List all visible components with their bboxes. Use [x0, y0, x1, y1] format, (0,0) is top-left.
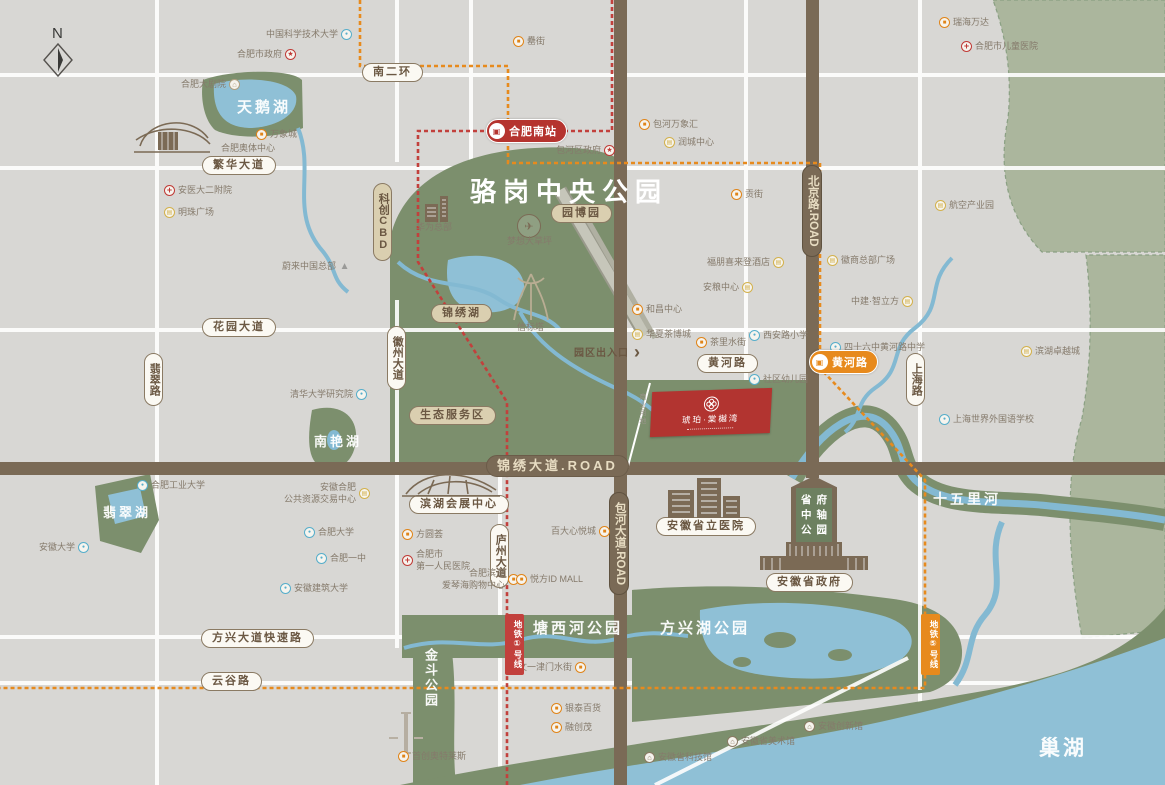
poi-school: ●安徽建筑大学	[280, 583, 348, 595]
poi-mall: ■万象城	[256, 129, 297, 141]
poi-hosp: +安医大二附院	[164, 185, 232, 197]
poi-museum: ⌂安徽创新馆	[804, 721, 863, 733]
train-icon: ▣	[812, 354, 828, 370]
poi-mall: ■瑞海万达	[939, 17, 989, 29]
poi-label: 万象城	[270, 129, 297, 141]
poi-school: ●清华大学研究院	[290, 389, 367, 401]
poi-label: 包河万象汇	[653, 119, 698, 131]
scale-bar	[404, 712, 408, 754]
mall-icon: ■	[696, 337, 707, 348]
area-label: 南艳湖	[314, 431, 362, 450]
poi-gov: ★合肥市政府	[237, 49, 296, 61]
poi-nio: ▲蔚来中国总部	[282, 261, 350, 273]
school-icon: ●	[356, 389, 367, 400]
area-label: 方兴湖公园	[660, 617, 750, 638]
poi-biz: ▤润城中心	[664, 137, 714, 149]
school-icon: ●	[280, 583, 291, 594]
poi-label: 百大心悦城	[551, 526, 596, 538]
station-label: 合肥南站	[509, 123, 557, 139]
poi-label: 合肥滨湖 爱琴海购物中心	[442, 568, 505, 591]
compass-n: N	[52, 25, 63, 42]
poi-school: ●合肥一中	[316, 553, 366, 565]
poi-label: 安徽建筑大学	[294, 583, 348, 595]
road-label: 云谷路	[201, 672, 262, 691]
hosp-icon: +	[164, 185, 175, 196]
poi-label: 安徽合肥 公共资源交易中心	[284, 482, 356, 505]
poi-label: 合肥工业大学	[151, 480, 205, 492]
hosp-icon: +	[961, 41, 972, 52]
school-icon: ●	[749, 330, 760, 341]
biz-icon: ▤	[664, 137, 675, 148]
compass: N	[36, 24, 80, 85]
convention-center-illustration	[398, 468, 504, 500]
poi-mall: ■方圆荟	[402, 529, 443, 541]
poi-biz: ▤滨湖卓越城	[1021, 346, 1080, 358]
poi-plain: 信标塔	[517, 322, 544, 334]
poi-biz: ▤安粮中心	[703, 282, 753, 294]
poi-label: 华夏茶博城	[646, 329, 691, 341]
project-emblem-icon	[703, 396, 720, 413]
poi-mall: ■悦方ID MALL	[516, 574, 583, 586]
poi-mall: ■罍街	[513, 36, 545, 48]
park-entrance-label: 园区出入口 ›	[574, 344, 641, 359]
mall-icon: ■	[256, 129, 267, 140]
mall-icon: ■	[639, 119, 650, 130]
biz-icon: ▤	[773, 257, 784, 268]
museum-icon: ⌂	[727, 736, 738, 747]
poi-label: 文一津门水街	[518, 662, 572, 674]
poi-label: 安徽省科技馆	[658, 752, 712, 764]
poi-biz: ▤福朋喜来登酒店	[707, 257, 784, 269]
school-icon: ●	[304, 527, 315, 538]
poi-label: 贡街	[745, 189, 763, 201]
poi-label: 信标塔	[517, 322, 544, 334]
poi-label: 安徽省美术馆	[741, 736, 795, 748]
poi-label: 社区幼儿园	[763, 374, 808, 386]
mall-icon: ■	[731, 189, 742, 200]
poi-label: 合肥一中	[330, 553, 366, 565]
axis-park-banner: 省府中轴公园	[791, 476, 837, 546]
road-label: 南二环	[362, 63, 423, 82]
poi-biz: ▤航空产业园	[935, 200, 994, 212]
mall-icon: ■	[551, 722, 562, 733]
poi-label: 合肥大剧院	[181, 79, 226, 91]
metro-station-badge: ▣合肥南站	[486, 119, 567, 143]
poi-school: ●社区幼儿园	[749, 374, 808, 386]
road-label: 方兴大道快速路	[201, 629, 314, 648]
plot-label: 商业用地	[637, 393, 647, 425]
project-marker: 琥珀·棠樾湾	[650, 388, 772, 437]
poi-school: ●中国科学技术大学	[266, 29, 352, 41]
hosp-icon: +	[402, 555, 413, 566]
poi-mall: ■文一津门水街	[518, 662, 586, 674]
school-icon: ●	[316, 553, 327, 564]
olympic-stadium-illustration	[128, 110, 216, 156]
poi-school: ●上海世界外国语学校	[939, 414, 1034, 426]
poi-school: ●西安路小学	[749, 330, 808, 342]
poi-label: 航空产业园	[949, 200, 994, 212]
biz-icon: ▤	[935, 200, 946, 211]
provincial-hospital-illustration	[664, 474, 744, 520]
poi-label: 和昌中心	[646, 304, 682, 316]
beacon-tower-illustration	[508, 270, 554, 324]
park-entrance-text: 园区出入口	[574, 344, 629, 359]
poi-plain: 梦想大草坪	[507, 236, 552, 248]
poi-label: 华为总部	[416, 222, 452, 234]
poi-biz: ▤安徽合肥 公共资源交易中心	[284, 482, 370, 505]
poi-label: 润城中心	[678, 137, 714, 149]
poi-label: 瑞海万达	[953, 17, 989, 29]
poi-plain: 华为总部	[416, 222, 452, 234]
biz-icon: ▤	[1021, 346, 1032, 357]
poi-biz: ▤徽商总部广场	[827, 255, 895, 267]
area-label: 翡翠湖	[103, 502, 151, 521]
road-label: 翡翠路	[144, 353, 163, 406]
map-canvas: N N	[0, 0, 1165, 785]
poi-theater: ⌂合肥大剧院	[181, 79, 240, 91]
poi-mall: ■和昌中心	[632, 304, 682, 316]
poi-label: 银泰百货	[565, 703, 601, 715]
road-label: 徽州大道	[387, 326, 406, 390]
poi-label: 合肥市儿童医院	[975, 41, 1038, 53]
poi-label: 包河区政府	[556, 145, 601, 157]
poi-label: 中建·智立方	[851, 296, 899, 308]
biz-icon: ▤	[827, 255, 838, 266]
area-label: 巢湖	[1039, 732, 1087, 762]
mall-icon: ■	[551, 703, 562, 714]
poi-label: 安医大二附院	[178, 185, 232, 197]
project-name: 琥珀·棠樾湾	[682, 412, 740, 426]
poi-school: ●安徽大学	[39, 542, 89, 554]
poi-mall: ■首创奥特莱斯	[398, 751, 466, 763]
poi-school: ●合肥工业大学	[137, 480, 205, 492]
poi-label: 安徽大学	[39, 542, 75, 554]
road-label: 安徽省政府	[766, 573, 853, 592]
gov-icon: ★	[285, 49, 296, 60]
axis-park-banner-row: 中轴	[796, 508, 832, 522]
poi-label: 合肥大学	[318, 527, 354, 539]
poi-label: 方圆荟	[416, 529, 443, 541]
road-label: 科创CBD	[373, 183, 392, 261]
poi-mall: ■融创茂	[551, 722, 592, 734]
road-label: 黄河路	[697, 354, 758, 373]
mall-icon: ■	[632, 304, 643, 315]
metro-line-badge: 地铁①号线	[505, 614, 524, 675]
road-label: 生态服务区	[409, 406, 496, 425]
poi-school: ●合肥大学	[304, 527, 354, 539]
school-icon: ●	[749, 374, 760, 385]
road-label: 上海路	[906, 353, 925, 406]
poi-label: 安徽创新馆	[818, 721, 863, 733]
poi-biz: ▤华夏茶博城	[632, 329, 691, 341]
metro-station-badge: ▣黄河路	[809, 350, 878, 374]
biz-icon: ▤	[164, 207, 175, 218]
area-label: 金斗公园	[421, 648, 440, 708]
biz-icon: ▤	[632, 329, 643, 340]
poi-mall: ■银泰百货	[551, 703, 601, 715]
poi-label: 合肥奥体中心	[221, 143, 275, 155]
poi-label: 西安路小学	[763, 330, 808, 342]
museum-icon: ⌂	[644, 752, 655, 763]
school-icon: ●	[78, 542, 89, 553]
poi-gov: ★包河区政府	[556, 145, 615, 157]
area-label: 塘西河公园	[533, 617, 623, 638]
poi-plain: 合肥奥体中心	[221, 143, 275, 155]
poi-label: 蔚来中国总部	[282, 261, 336, 273]
mall-icon: ■	[575, 662, 586, 673]
poi-label: 清华大学研究院	[290, 389, 353, 401]
poi-mall: ■贡街	[731, 189, 763, 201]
biz-icon: ▤	[902, 296, 913, 307]
park-title: 骆岗中央公园	[470, 172, 668, 209]
road-label: 包河大道.ROAD	[609, 492, 629, 595]
gov-icon: ★	[604, 145, 615, 156]
school-icon: ●	[341, 29, 352, 40]
road-label: 北京路.ROAD	[802, 165, 822, 257]
axis-park-banner-inner: 省府中轴公园	[796, 488, 832, 542]
nio-icon: ▲	[339, 261, 350, 272]
mall-icon: ■	[516, 574, 527, 585]
museum-icon: ⌂	[804, 721, 815, 732]
poi-museum: ⌂安徽省科技馆	[644, 752, 712, 764]
poi-label: 茶里水街	[710, 337, 746, 349]
poi-label: 中国科学技术大学	[266, 29, 338, 41]
poi-label: 安粮中心	[703, 282, 739, 294]
poi-mall: ■包河万象汇	[639, 119, 698, 131]
poi-hosp: +合肥市儿童医院	[961, 41, 1038, 53]
poi-label: 上海世界外国语学校	[953, 414, 1034, 426]
poi-biz: ▤明珠广场	[164, 207, 214, 219]
train-icon: ▣	[489, 123, 505, 139]
mall-icon: ■	[939, 17, 950, 28]
poi-label: 梦想大草坪	[507, 236, 552, 248]
biz-icon: ▤	[742, 282, 753, 293]
area-label: 天鹅湖	[237, 96, 291, 117]
road-label: 繁华大道	[202, 156, 276, 175]
poi-label: 合肥市政府	[237, 49, 282, 61]
chevron-right-icon: ›	[634, 347, 641, 357]
poi-label: 福朋喜来登酒店	[707, 257, 770, 269]
school-icon: ●	[939, 414, 950, 425]
theater-icon: ⌂	[229, 79, 240, 90]
poi-label: 悦方ID MALL	[530, 574, 583, 586]
axis-park-banner-row: 省府	[796, 493, 832, 507]
road-label: 锦绣湖	[431, 304, 492, 323]
poi-label: 罍街	[527, 36, 545, 48]
mall-icon: ■	[398, 751, 409, 762]
dream-lawn-plane-icon: ✈	[517, 214, 541, 238]
axis-park-banner-row: 公园	[796, 523, 832, 537]
poi-mall: ■百大心悦城	[551, 526, 610, 538]
poi-label: 融创茂	[565, 722, 592, 734]
poi-label: 首创奥特莱斯	[412, 751, 466, 763]
area-label: 十五里河	[933, 489, 1001, 509]
poi-label: 明珠广场	[178, 207, 214, 219]
station-label: 黄河路	[832, 354, 868, 370]
mall-icon: ■	[599, 526, 610, 537]
project-subtext-rule	[687, 426, 733, 430]
poi-mall: ■合肥滨湖 爱琴海购物中心	[442, 568, 519, 591]
road-label: 花园大道	[202, 318, 276, 337]
poi-mall: ■茶里水街	[696, 337, 746, 349]
mall-icon: ■	[513, 36, 524, 47]
poi-museum: ⌂安徽省美术馆	[727, 736, 795, 748]
biz-icon: ▤	[359, 488, 370, 499]
metro-line-badge: 地铁⑤号线	[921, 614, 940, 675]
school-icon: ●	[137, 480, 148, 491]
scale-bar-tick	[414, 737, 423, 739]
scale-bar-tick	[389, 737, 398, 739]
huawei-hq-illustration	[421, 194, 455, 224]
poi-label: 滨湖卓越城	[1035, 346, 1080, 358]
road-label: 锦绣大道.ROAD	[486, 455, 629, 477]
poi-biz: ▤中建·智立方	[851, 296, 913, 308]
poi-label: 徽商总部广场	[841, 255, 895, 267]
mall-icon: ■	[402, 529, 413, 540]
